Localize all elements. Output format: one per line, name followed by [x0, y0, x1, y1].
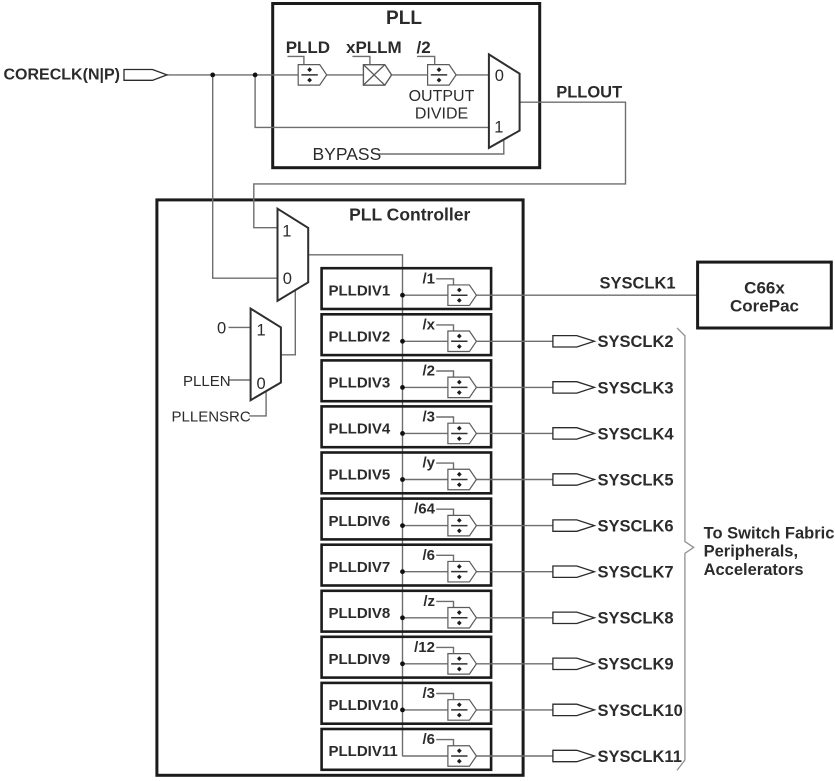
svg-text:/3: /3: [422, 685, 435, 702]
svg-text:PLLENSRC: PLLENSRC: [172, 409, 251, 426]
svg-text:PLL: PLL: [386, 8, 422, 29]
svg-text:/3: /3: [422, 409, 435, 426]
svg-text:OUTPUT: OUTPUT: [409, 88, 475, 105]
svg-text:xPLLM: xPLLM: [346, 38, 402, 57]
svg-text:1: 1: [494, 118, 503, 136]
svg-text:0: 0: [257, 375, 266, 393]
svg-text:SYSCLK4: SYSCLK4: [598, 425, 675, 443]
svg-text:SYSCLK2: SYSCLK2: [598, 333, 674, 351]
svg-text:CorePac: CorePac: [730, 296, 799, 315]
svg-text:PLLDIV9: PLLDIV9: [329, 651, 391, 668]
svg-text:PLLD: PLLD: [286, 38, 330, 57]
svg-text:SYSCLK5: SYSCLK5: [598, 471, 674, 489]
svg-text:SYSCLK10: SYSCLK10: [598, 702, 683, 720]
svg-text:0: 0: [495, 67, 504, 85]
svg-text:To Switch Fabric,: To Switch Fabric,: [704, 524, 835, 542]
svg-text:/z: /z: [423, 593, 435, 610]
svg-text:BYPASS: BYPASS: [313, 144, 382, 164]
svg-text:/12: /12: [414, 639, 435, 656]
svg-text:/1: /1: [422, 270, 435, 287]
svg-text:SYSCLK3: SYSCLK3: [598, 379, 674, 397]
svg-text:PLLDIV1: PLLDIV1: [329, 282, 391, 299]
svg-text:SYSCLK7: SYSCLK7: [598, 564, 674, 582]
svg-text:SYSCLK8: SYSCLK8: [598, 610, 674, 628]
svg-text:SYSCLK9: SYSCLK9: [598, 656, 674, 674]
svg-text:/2: /2: [422, 363, 435, 380]
svg-text:1: 1: [257, 321, 266, 339]
svg-text:/6: /6: [422, 547, 435, 564]
svg-text:PLLDIV3: PLLDIV3: [329, 375, 391, 392]
svg-text:/64: /64: [414, 501, 436, 518]
svg-text:PLLDIV10: PLLDIV10: [329, 697, 399, 714]
svg-text:PLLDIV7: PLLDIV7: [329, 559, 391, 576]
svg-text:/2: /2: [417, 38, 431, 57]
svg-text:/y: /y: [422, 455, 435, 472]
svg-text:0: 0: [283, 270, 292, 288]
svg-text:PLLDIV6: PLLDIV6: [329, 513, 391, 530]
svg-text:PLLEN: PLLEN: [183, 373, 231, 390]
svg-text:PLLDIV11: PLLDIV11: [329, 743, 398, 760]
svg-text:PLLDIV8: PLLDIV8: [329, 605, 391, 622]
svg-text:SYSCLK1: SYSCLK1: [600, 275, 676, 293]
svg-text:1: 1: [282, 223, 291, 241]
svg-text:0: 0: [217, 320, 226, 338]
svg-text:PLLDIV4: PLLDIV4: [329, 421, 391, 438]
svg-text:PLLDIV5: PLLDIV5: [329, 467, 391, 484]
svg-text:/x: /x: [422, 316, 435, 333]
svg-text:PLLOUT: PLLOUT: [556, 83, 622, 101]
svg-text:SYSCLK6: SYSCLK6: [598, 518, 674, 536]
svg-text:DIVIDE: DIVIDE: [415, 105, 468, 122]
svg-text:Accelerators: Accelerators: [704, 561, 804, 579]
svg-text:C66x: C66x: [744, 279, 785, 298]
svg-text:CORECLK(N|P): CORECLK(N|P): [4, 67, 120, 84]
svg-text:Peripherals,: Peripherals,: [704, 543, 798, 561]
svg-text:/6: /6: [422, 731, 435, 748]
svg-text:SYSCLK11: SYSCLK11: [598, 748, 682, 766]
svg-text:PLL Controller: PLL Controller: [349, 205, 470, 225]
svg-text:PLLDIV2: PLLDIV2: [329, 329, 391, 346]
